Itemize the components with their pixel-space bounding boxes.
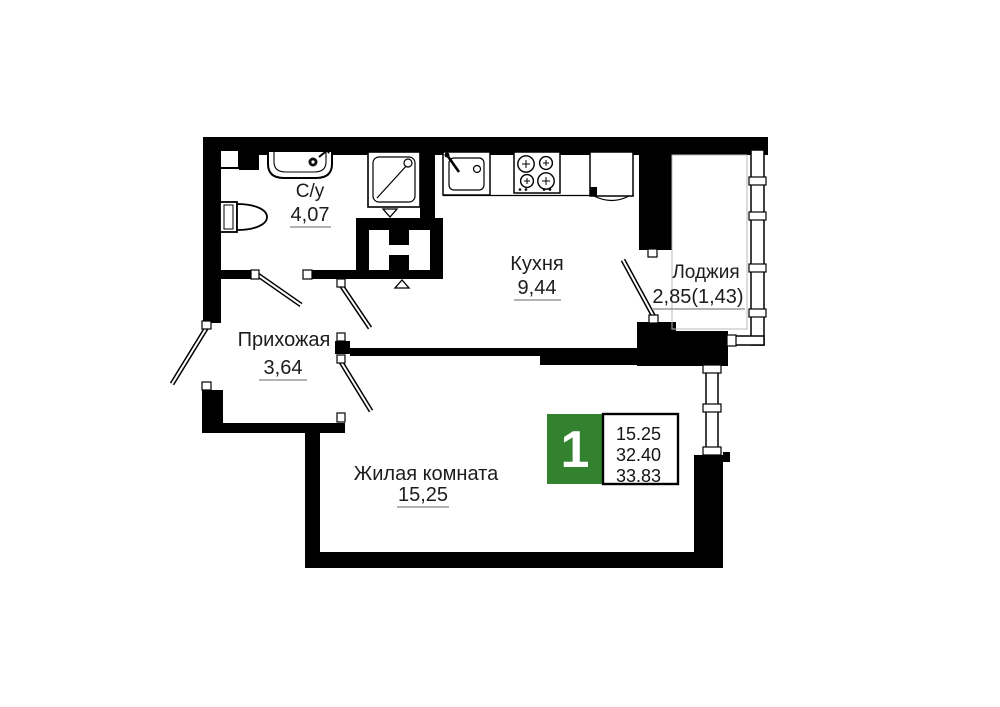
shower-icon: [368, 152, 420, 207]
room-label-hallway: Прихожая: [238, 329, 331, 351]
wall-hall-stub: [335, 341, 350, 354]
room-label-loggia: Лоджия: [672, 262, 739, 283]
wall-corner-niche: [220, 150, 239, 168]
wall-hall-corner: [202, 390, 223, 433]
badge-total-area: 33.83: [616, 466, 661, 486]
badge-living-area: 15.25: [616, 424, 661, 444]
badge-area-without-loggia: 32.40: [616, 445, 661, 465]
badge-rooms-count: 1: [561, 421, 590, 479]
room-area-living-room: 15,25: [398, 484, 448, 506]
shaft-left: [356, 218, 369, 279]
room-label-bathroom: С/у: [296, 181, 325, 202]
wall-kitchen-loggia: [639, 137, 672, 250]
wall-bath-bottom-right: [312, 270, 443, 279]
wall-living-bottom: [305, 552, 723, 568]
floor-plan-svg: С/у 4,07 Кухня 9,44 Лоджия 2,85(1,43) Пр…: [0, 0, 1000, 707]
floor-plan-page: С/у 4,07 Кухня 9,44 Лоджия 2,85(1,43) Пр…: [0, 0, 1000, 707]
shaft-right: [430, 218, 443, 279]
stove-icon: [514, 152, 560, 193]
living-room-window-glazing: [703, 365, 721, 455]
wall-bath-kitchen-divider: [420, 137, 435, 222]
room-area-bathroom: 4,07: [291, 204, 330, 226]
room-area-loggia: 2,85(1,43): [652, 286, 743, 308]
room-label-kitchen: Кухня: [510, 253, 564, 275]
fridge-icon: [590, 152, 633, 201]
wall-kitchen-living-thick: [540, 348, 640, 365]
washbasin-icon: [268, 147, 332, 178]
room-label-living-room: Жилая комната: [354, 463, 499, 485]
wall-loggia-lower: [637, 322, 676, 366]
kitchen-sink-icon: [443, 152, 490, 195]
wall-right-tab: [723, 452, 730, 462]
wall-living-right: [694, 455, 723, 568]
wall-left: [203, 137, 221, 323]
wall-kitchen-living-thin: [350, 348, 540, 356]
room-area-hallway: 3,64: [264, 357, 303, 379]
shaft-mid-upper: [389, 229, 409, 245]
wall-hall-bottom: [202, 423, 345, 433]
shaft-top: [356, 218, 443, 230]
apartment-info-badge: 1 15.25 32.40 33.83: [547, 414, 678, 486]
room-area-kitchen: 9,44: [518, 277, 557, 299]
wall-corner-pier: [239, 149, 259, 170]
wall-loggia-bottom: [676, 331, 728, 366]
wall-living-left: [305, 423, 320, 568]
